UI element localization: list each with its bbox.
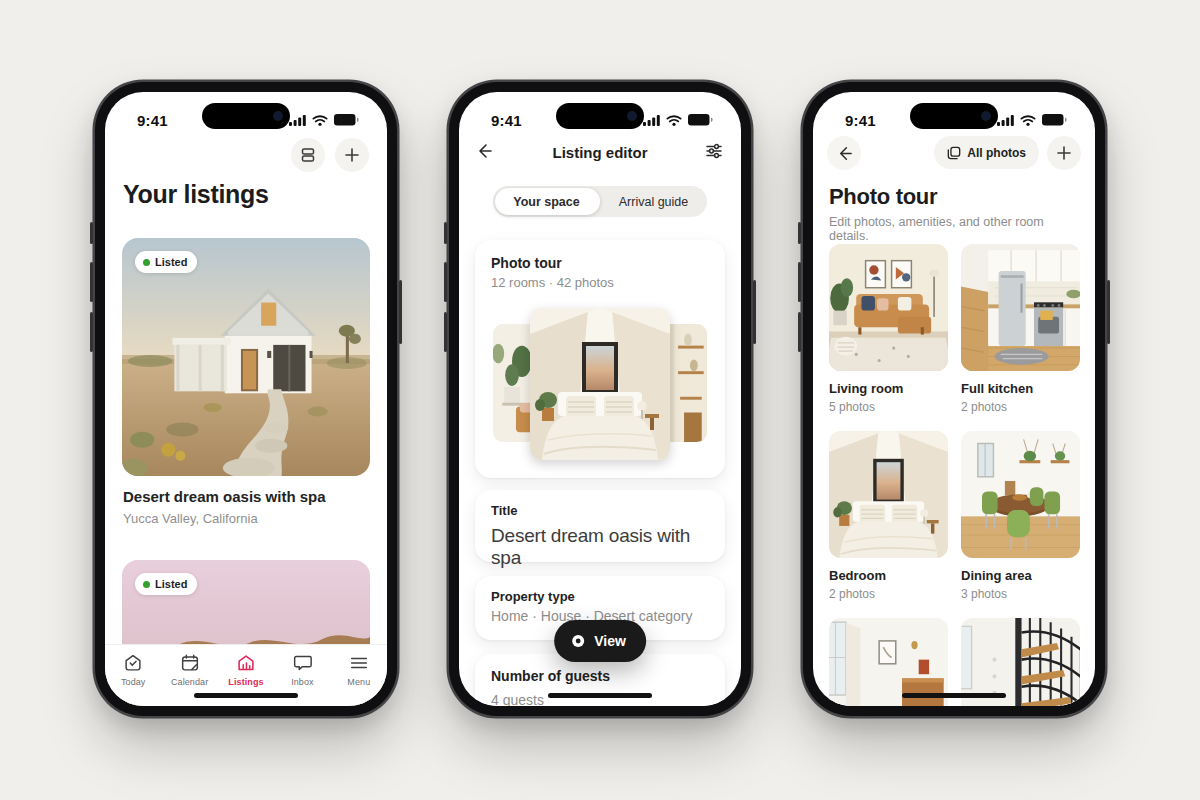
room-photo-count: 2 photos	[961, 400, 1080, 414]
plus-icon	[344, 147, 360, 163]
listings-screen: 9:41 Your listings	[105, 92, 387, 706]
listed-label: Listed	[155, 578, 187, 590]
photo-tour-card[interactable]: Photo tour 12 rooms · 42 photos	[475, 240, 725, 478]
tab-label: Listings	[228, 677, 263, 687]
all-photos-button[interactable]: All photos	[934, 136, 1039, 169]
room-photo-count: 2 photos	[829, 587, 948, 601]
view-button[interactable]: View	[554, 620, 646, 662]
segmented-control: Your space Arrival guide	[493, 186, 707, 217]
today-icon	[122, 652, 144, 674]
listing-photo-desert-house	[122, 238, 370, 476]
volume-up-button	[444, 262, 447, 302]
battery-icon	[688, 114, 713, 126]
status-time: 9:41	[491, 112, 522, 129]
page-background: 9:41 Your listings	[0, 0, 1200, 800]
carousel-photo-right	[665, 324, 707, 442]
page-title: Your listings	[123, 180, 269, 209]
room-photo-count: 5 photos	[829, 400, 948, 414]
all-photos-label: All photos	[967, 146, 1026, 160]
status-time: 9:41	[845, 112, 876, 129]
status-time: 9:41	[137, 112, 168, 129]
page-title: Photo tour	[829, 184, 937, 210]
screen-title: Listing editor	[459, 144, 741, 161]
segment-your-space[interactable]: Your space	[493, 186, 600, 217]
volume-up-button	[798, 262, 801, 302]
home-indicator[interactable]	[902, 693, 1006, 698]
status-icons	[289, 114, 359, 126]
listings-icon	[235, 652, 257, 674]
menu-icon	[348, 652, 370, 674]
photos-stack-icon	[947, 146, 961, 160]
segment-arrival-guide[interactable]: Arrival guide	[600, 186, 707, 217]
room-grid: Living room 5 photos Full kitchen 2 phot…	[829, 244, 1080, 706]
phone-listing-editor: 9:41 Listing editor Your space	[449, 82, 751, 716]
listed-label: Listed	[155, 256, 187, 268]
power-button	[753, 280, 756, 344]
room-photo-dining-area	[961, 431, 1080, 558]
room-photo-bedroom	[829, 431, 948, 558]
card-meta: 12 rooms · 42 photos	[491, 275, 709, 290]
status-badge: Listed	[135, 573, 197, 595]
room-name: Bedroom	[829, 568, 948, 583]
wifi-icon	[666, 115, 682, 126]
battery-icon	[1042, 114, 1067, 126]
tab-label: Inbox	[291, 677, 314, 687]
carousel-photo-left	[493, 324, 535, 442]
photo-carousel	[491, 300, 709, 468]
back-button[interactable]	[827, 136, 861, 170]
listing-editor-screen: 9:41 Listing editor Your space	[459, 92, 741, 706]
title-card[interactable]: Title Desert dream oasis with spa	[475, 490, 725, 562]
room-tile-full-kitchen[interactable]: Full kitchen 2 photos	[961, 244, 1080, 414]
room-tile-dining-area[interactable]: Dining area 3 photos	[961, 431, 1080, 601]
listed-dot-icon	[143, 581, 150, 588]
room-tile-living-room[interactable]: Living room 5 photos	[829, 244, 948, 414]
status-bar: 9:41	[105, 109, 387, 131]
room-name: Full kitchen	[961, 381, 1080, 396]
add-listing-button[interactable]	[335, 138, 369, 172]
listed-dot-icon	[143, 259, 150, 266]
tab-label: Today	[121, 677, 146, 687]
wifi-icon	[312, 115, 328, 126]
room-photo-count: 3 photos	[961, 587, 1080, 601]
wifi-icon	[1020, 115, 1036, 126]
home-indicator[interactable]	[548, 693, 652, 698]
status-icons	[643, 114, 713, 126]
home-indicator[interactable]	[194, 693, 298, 698]
mute-switch	[90, 222, 93, 244]
volume-down-button	[798, 312, 801, 352]
listing-title: Desert dream oasis with spa	[123, 488, 326, 505]
listing-card-desert-oasis[interactable]: Listed	[122, 238, 370, 476]
field-label: Number of guests	[491, 668, 709, 684]
field-label: Property type	[491, 589, 709, 604]
room-tile-bedroom[interactable]: Bedroom 2 photos	[829, 431, 948, 601]
card-title: Photo tour	[491, 255, 709, 271]
page-subtitle: Edit photos, amenities, and other room d…	[829, 215, 1081, 243]
cellular-icon	[643, 115, 660, 126]
cellular-icon	[289, 115, 306, 126]
field-label: Title	[491, 503, 709, 518]
status-icons	[997, 114, 1067, 126]
power-button	[1107, 280, 1110, 344]
volume-down-button	[444, 312, 447, 352]
status-bar: 9:41	[459, 109, 741, 131]
editor-header: Listing editor	[459, 136, 741, 170]
eye-icon	[570, 633, 586, 649]
battery-icon	[334, 114, 359, 126]
tab-label: Calendar	[171, 677, 208, 687]
view-button-label: View	[594, 633, 626, 649]
volume-down-button	[90, 312, 93, 352]
mute-switch	[444, 222, 447, 244]
stacked-rows-icon	[300, 147, 316, 163]
sliders-icon	[705, 142, 723, 160]
plus-icon	[1056, 145, 1072, 161]
tab-label: Menu	[347, 677, 370, 687]
status-badge: Listed	[135, 251, 197, 273]
field-value: Desert dream oasis with spa	[491, 525, 709, 569]
phone-photo-tour: 9:41 All photos Photo tour	[803, 82, 1105, 716]
view-toggle-button[interactable]	[291, 138, 325, 172]
cellular-icon	[997, 115, 1014, 126]
listing-location: Yucca Valley, California	[123, 511, 258, 526]
mute-switch	[798, 222, 801, 244]
back-arrow-icon	[836, 145, 853, 162]
add-photo-button[interactable]	[1047, 136, 1081, 170]
volume-up-button	[90, 262, 93, 302]
inbox-icon	[291, 652, 313, 674]
tab-menu[interactable]: Menu	[331, 652, 387, 706]
room-photo-living-room	[829, 244, 948, 371]
carousel-photo-bedroom	[530, 308, 670, 460]
calendar-icon	[179, 652, 201, 674]
status-bar: 9:41	[813, 109, 1095, 131]
room-name: Living room	[829, 381, 948, 396]
photo-tour-screen: 9:41 All photos Photo tour	[813, 92, 1095, 706]
tab-today[interactable]: Today	[105, 652, 161, 706]
room-photo-full-kitchen	[961, 244, 1080, 371]
power-button	[399, 280, 402, 344]
filters-button[interactable]	[705, 142, 723, 164]
phone-listings: 9:41 Your listings	[95, 82, 397, 716]
room-name: Dining area	[961, 568, 1080, 583]
